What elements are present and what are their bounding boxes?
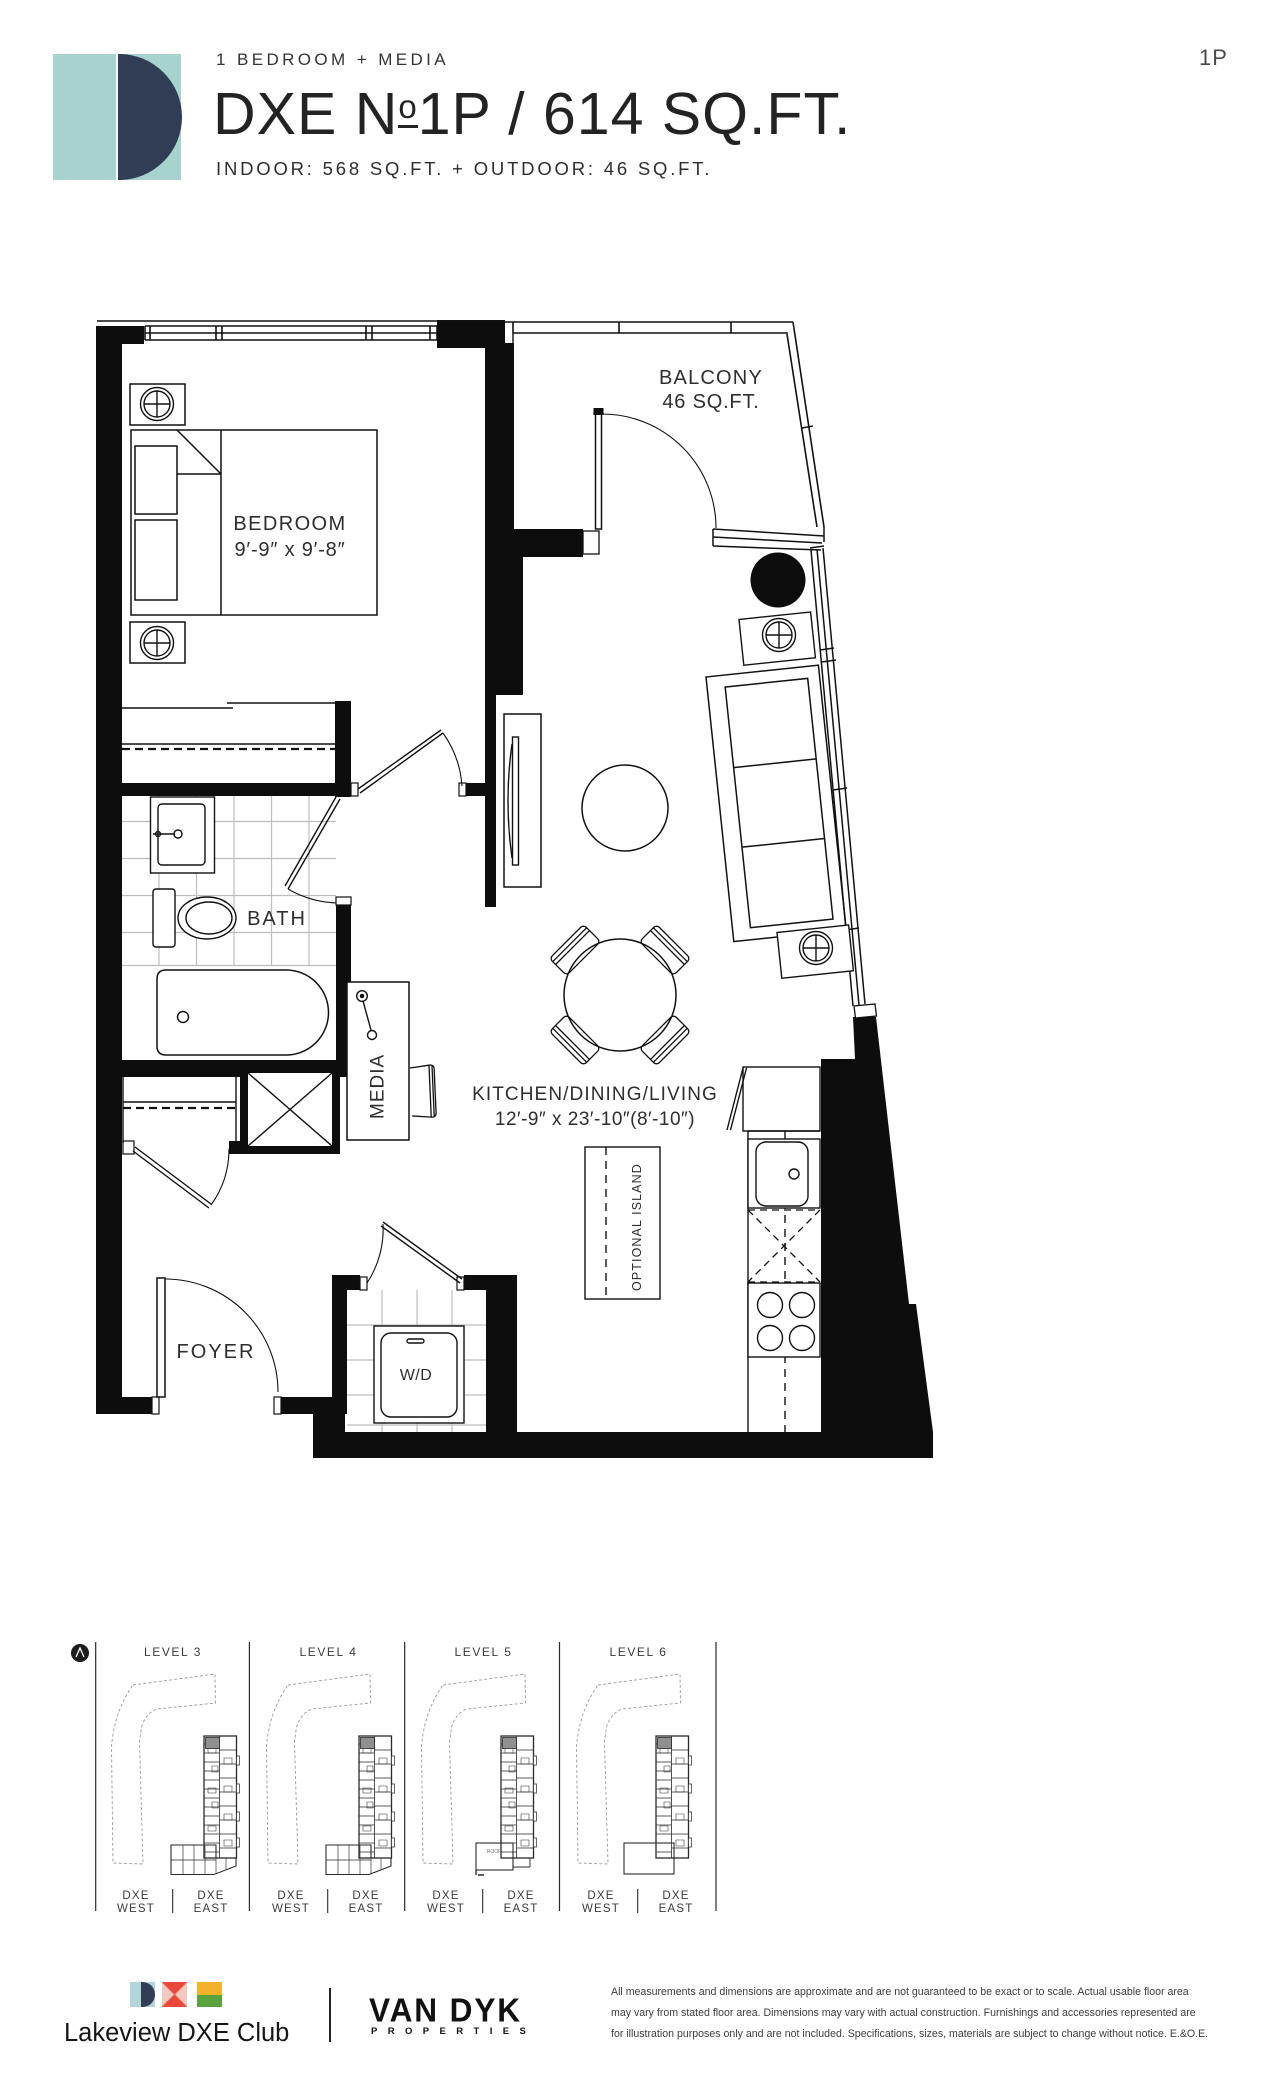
svg-text:LEVEL 3: LEVEL 3 [144,1645,202,1659]
svg-text:EAST: EAST [659,1903,694,1915]
svg-text:EAST: EAST [349,1903,384,1915]
svg-text:EAST: EAST [194,1903,229,1915]
svg-text:EAST: EAST [504,1903,539,1915]
svg-text:DXE: DXE [587,1890,614,1902]
svg-text:KITCHEN/DINING/LIVING: KITCHEN/DINING/LIVING [472,1084,718,1105]
svg-text:46 SQ.FT.: 46 SQ.FT. [662,391,759,413]
svg-text:FOYER: FOYER [177,1341,256,1363]
svg-text:LEVEL 6: LEVEL 6 [609,1645,667,1659]
svg-text:WEST: WEST [272,1903,310,1915]
svg-text:WEST: WEST [582,1903,620,1915]
svg-text:MEDIA: MEDIA [368,1054,389,1119]
svg-text:BATH: BATH [247,908,307,930]
svg-text:W/D: W/D [400,1367,433,1384]
svg-text:9′-9″ x 9′-8″: 9′-9″ x 9′-8″ [235,539,346,561]
svg-text:LEVEL 4: LEVEL 4 [299,1645,357,1659]
svg-text:DXE: DXE [197,1890,224,1902]
svg-text:BALCONY: BALCONY [659,367,763,389]
svg-text:ROOF: ROOF [487,1849,501,1855]
svg-text:LEVEL 5: LEVEL 5 [454,1645,512,1659]
svg-text:DXE: DXE [352,1890,379,1902]
svg-text:WEST: WEST [117,1903,155,1915]
svg-text:WEST: WEST [427,1903,465,1915]
svg-text:DXE: DXE [507,1890,534,1902]
svg-text:OPTIONAL ISLAND: OPTIONAL ISLAND [630,1163,644,1291]
svg-text:DXE: DXE [122,1890,149,1902]
svg-text:DXE: DXE [432,1890,459,1902]
svg-text:12′-9″ x 23′-10″(8′-10″): 12′-9″ x 23′-10″(8′-10″) [495,1109,695,1130]
svg-text:DXE: DXE [662,1890,689,1902]
svg-text:BEDROOM: BEDROOM [233,513,346,535]
svg-text:DXE: DXE [277,1890,304,1902]
